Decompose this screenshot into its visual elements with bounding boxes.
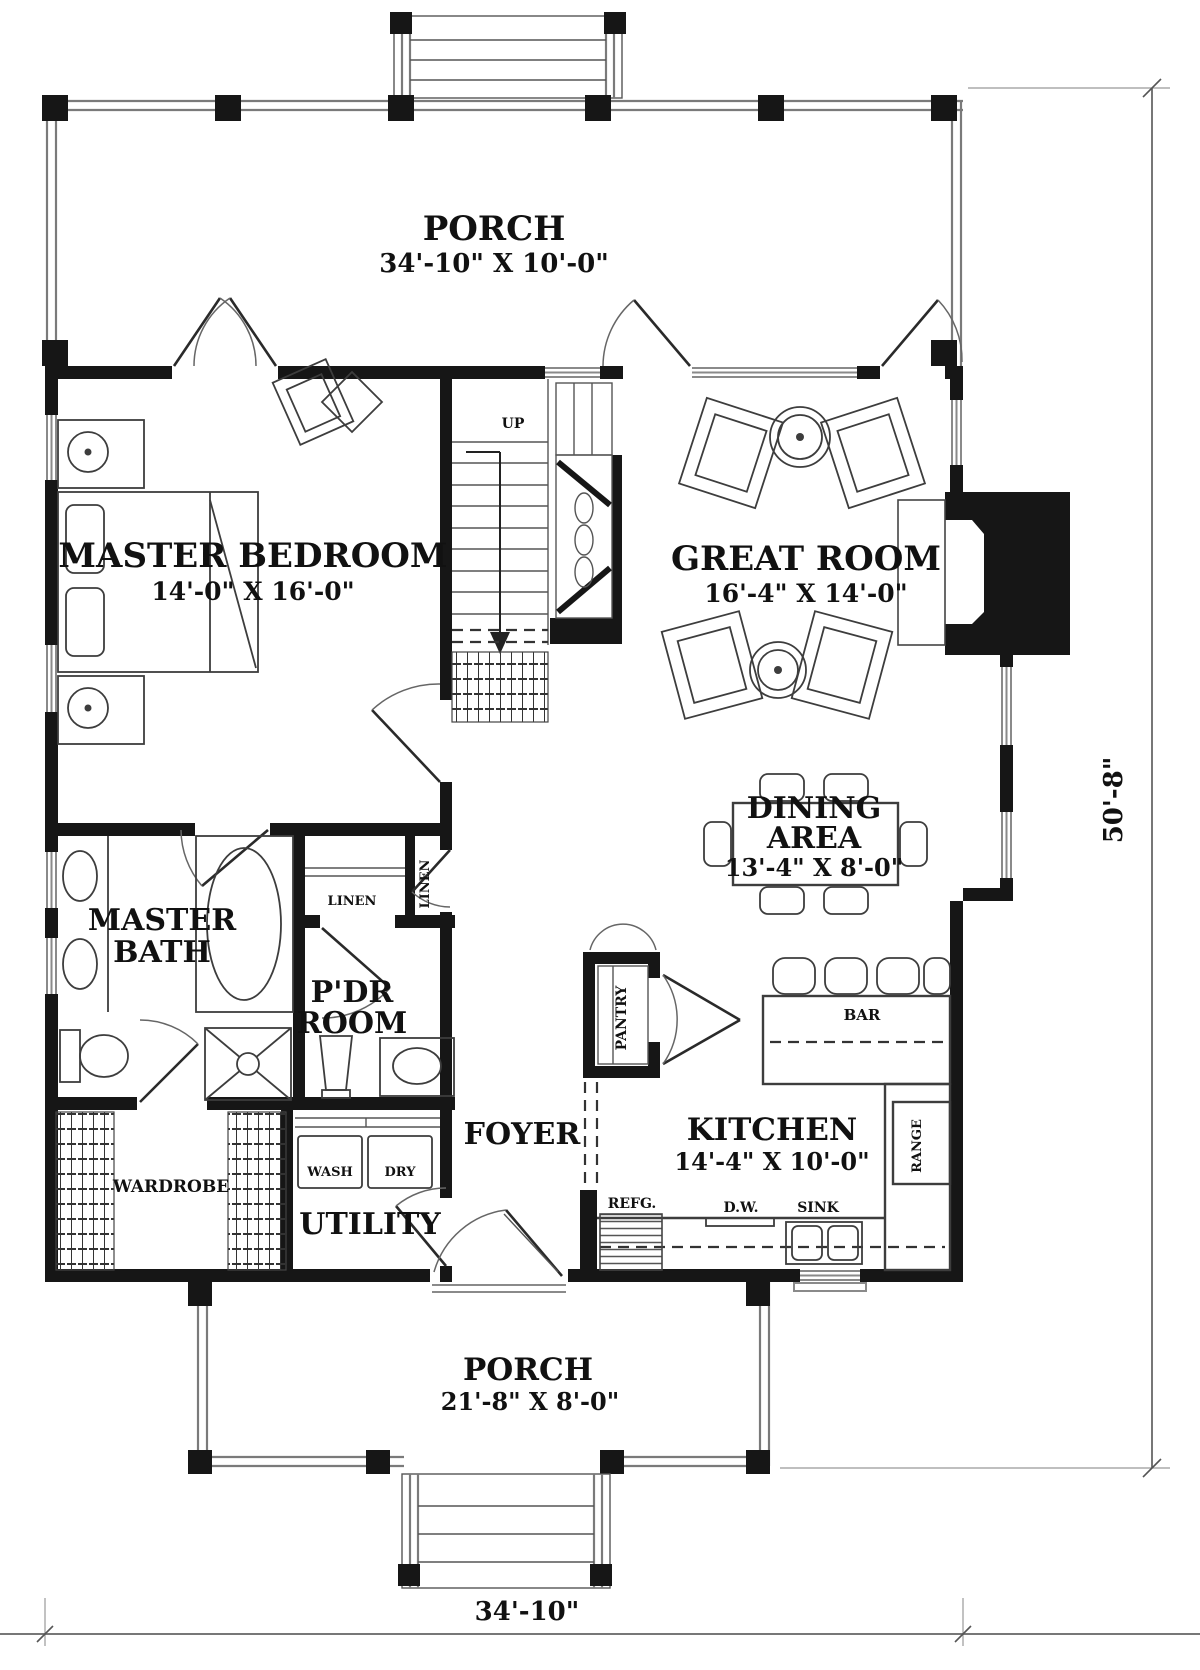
utility-label: UTILITY — [299, 1207, 441, 1242]
bar-counter: BAR — [763, 996, 950, 1084]
foyer-label: FOYER — [464, 1117, 582, 1152]
kitchen-dims: 14'-4" X 10'-0" — [674, 1147, 869, 1176]
armchair — [662, 611, 763, 719]
kitchen-label: KITCHEN — [687, 1112, 857, 1148]
width-dimension-label: 34'-10" — [475, 1597, 580, 1627]
vanity-basin — [63, 851, 97, 901]
master-bath: MASTER BATH — [60, 836, 293, 1100]
sink-label: SINK — [797, 1200, 839, 1216]
window-top-stair — [545, 368, 600, 377]
laundry-counter — [295, 1118, 440, 1127]
wardrobe: WARDROBE — [56, 1112, 286, 1270]
toilet — [320, 1036, 352, 1098]
shower — [205, 1028, 291, 1100]
round-table — [750, 642, 806, 698]
dining-dims: 13'-4" X 8'-0" — [725, 853, 903, 882]
front-door — [432, 1210, 566, 1292]
utility: WASH DRY UTILITY — [295, 1118, 441, 1242]
bottom-counter: REFG. D.W. SINK — [597, 1196, 945, 1270]
refrigerator — [600, 1214, 662, 1270]
bar-label: BAR — [844, 1006, 881, 1024]
great-room-dims: 16'-4" X 14'-0" — [704, 579, 907, 608]
understair-closet — [452, 652, 548, 722]
range-label: RANGE — [910, 1119, 925, 1173]
dryer-label: DRY — [385, 1165, 417, 1180]
vanity-basin — [63, 939, 97, 989]
nightstand-bottom — [58, 676, 144, 744]
washer-label: WASH — [306, 1165, 353, 1180]
porch-top-label: PORCH — [423, 209, 566, 249]
dishwasher-label: D.W. — [724, 1200, 759, 1216]
master-bedroom-label: MASTER BEDROOM — [58, 536, 447, 576]
bottom-porch-steps — [398, 1474, 612, 1588]
hanging-rod — [228, 1112, 286, 1270]
stair-builtin — [556, 455, 612, 618]
master-bath-label-1: MASTER — [88, 903, 237, 938]
staircase: UP — [452, 379, 612, 722]
window-kitchen-sink — [794, 1271, 866, 1291]
hanging-rod — [56, 1112, 114, 1270]
washer — [298, 1136, 362, 1188]
depth-dimension: 50'-8" — [780, 79, 1170, 1477]
french-door-master — [174, 298, 276, 366]
bedroom-door — [372, 684, 440, 782]
top-porch-steps — [390, 12, 626, 98]
bath-wardrobe-door — [140, 1020, 198, 1102]
refrigerator-label: REFG. — [608, 1196, 657, 1212]
powder-room-label-1: P'DR — [311, 975, 395, 1010]
right-counter: RANGE — [885, 1084, 950, 1270]
linen-left-label: LINEN — [328, 894, 377, 909]
toilet — [60, 1030, 128, 1082]
porch-door-greatroom-left — [603, 300, 690, 366]
wardrobe-label: WARDROBE — [112, 1177, 229, 1197]
pantry: PANTRY — [583, 924, 660, 1078]
sink-basin — [786, 1222, 862, 1264]
armchair — [679, 398, 783, 508]
dining-area: DINING AREA 13'-4" X 8'-0" — [704, 774, 927, 914]
dining-label-2: AREA — [766, 821, 862, 856]
linen-right-label: LINEN — [418, 859, 433, 908]
floor-plan-canvas: PORCH 34'-10" X 10'-0" — [0, 0, 1200, 1670]
pantry-door — [663, 975, 740, 1064]
great-room-label: GREAT ROOM — [671, 539, 941, 579]
stair-shelf — [556, 383, 612, 455]
top-porch: PORCH 34'-10" X 10'-0" — [42, 12, 963, 366]
armchair — [821, 398, 925, 508]
armchair — [792, 611, 893, 719]
master-bedroom-dims: 14'-0" X 16'-0" — [151, 577, 354, 606]
master-bedroom: MASTER BEDROOM 14'-0" X 16'-0" — [58, 359, 448, 744]
window-top-greatroom — [692, 368, 857, 377]
porch-bottom-label: PORCH — [463, 1352, 593, 1388]
window-right-greatroom — [952, 400, 961, 465]
width-dimension: 34'-10" — [0, 1597, 1200, 1646]
porch-bottom-dims: 21'-8" X 8'-0" — [441, 1387, 619, 1416]
foyer: FOYER — [464, 1082, 597, 1188]
nightstand-top — [58, 420, 144, 488]
stairs-up-label: UP — [502, 416, 525, 432]
bottom-porch: PORCH 21'-8" X 8'-0" — [188, 1282, 770, 1588]
great-room: GREAT ROOM 16'-4" X 14'-0" — [662, 398, 1070, 719]
bar-stools — [773, 958, 950, 994]
kitchen: BAR RANGE REFG. D.W. SINK — [597, 958, 950, 1270]
stair-direction-arrow — [466, 452, 510, 654]
powder-room: P'DR ROOM — [297, 975, 454, 1098]
porch-top-dims: 34'-10" X 10'-0" — [379, 249, 609, 279]
depth-dimension-label: 50'-8" — [1099, 757, 1129, 844]
powder-room-label-2: ROOM — [297, 1006, 407, 1041]
master-bath-label-2: BATH — [113, 935, 211, 970]
dryer — [368, 1136, 432, 1188]
pantry-label: PANTRY — [614, 985, 630, 1051]
